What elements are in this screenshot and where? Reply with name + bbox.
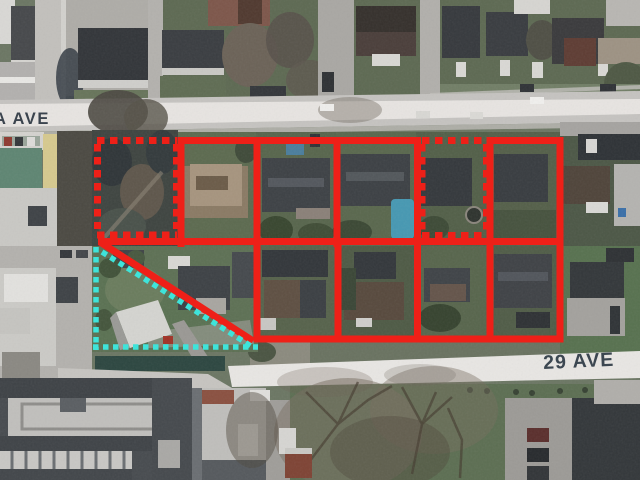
svg-text:29 AVE: 29 AVE — [543, 349, 615, 374]
svg-text:A AVE: A AVE — [0, 110, 50, 128]
